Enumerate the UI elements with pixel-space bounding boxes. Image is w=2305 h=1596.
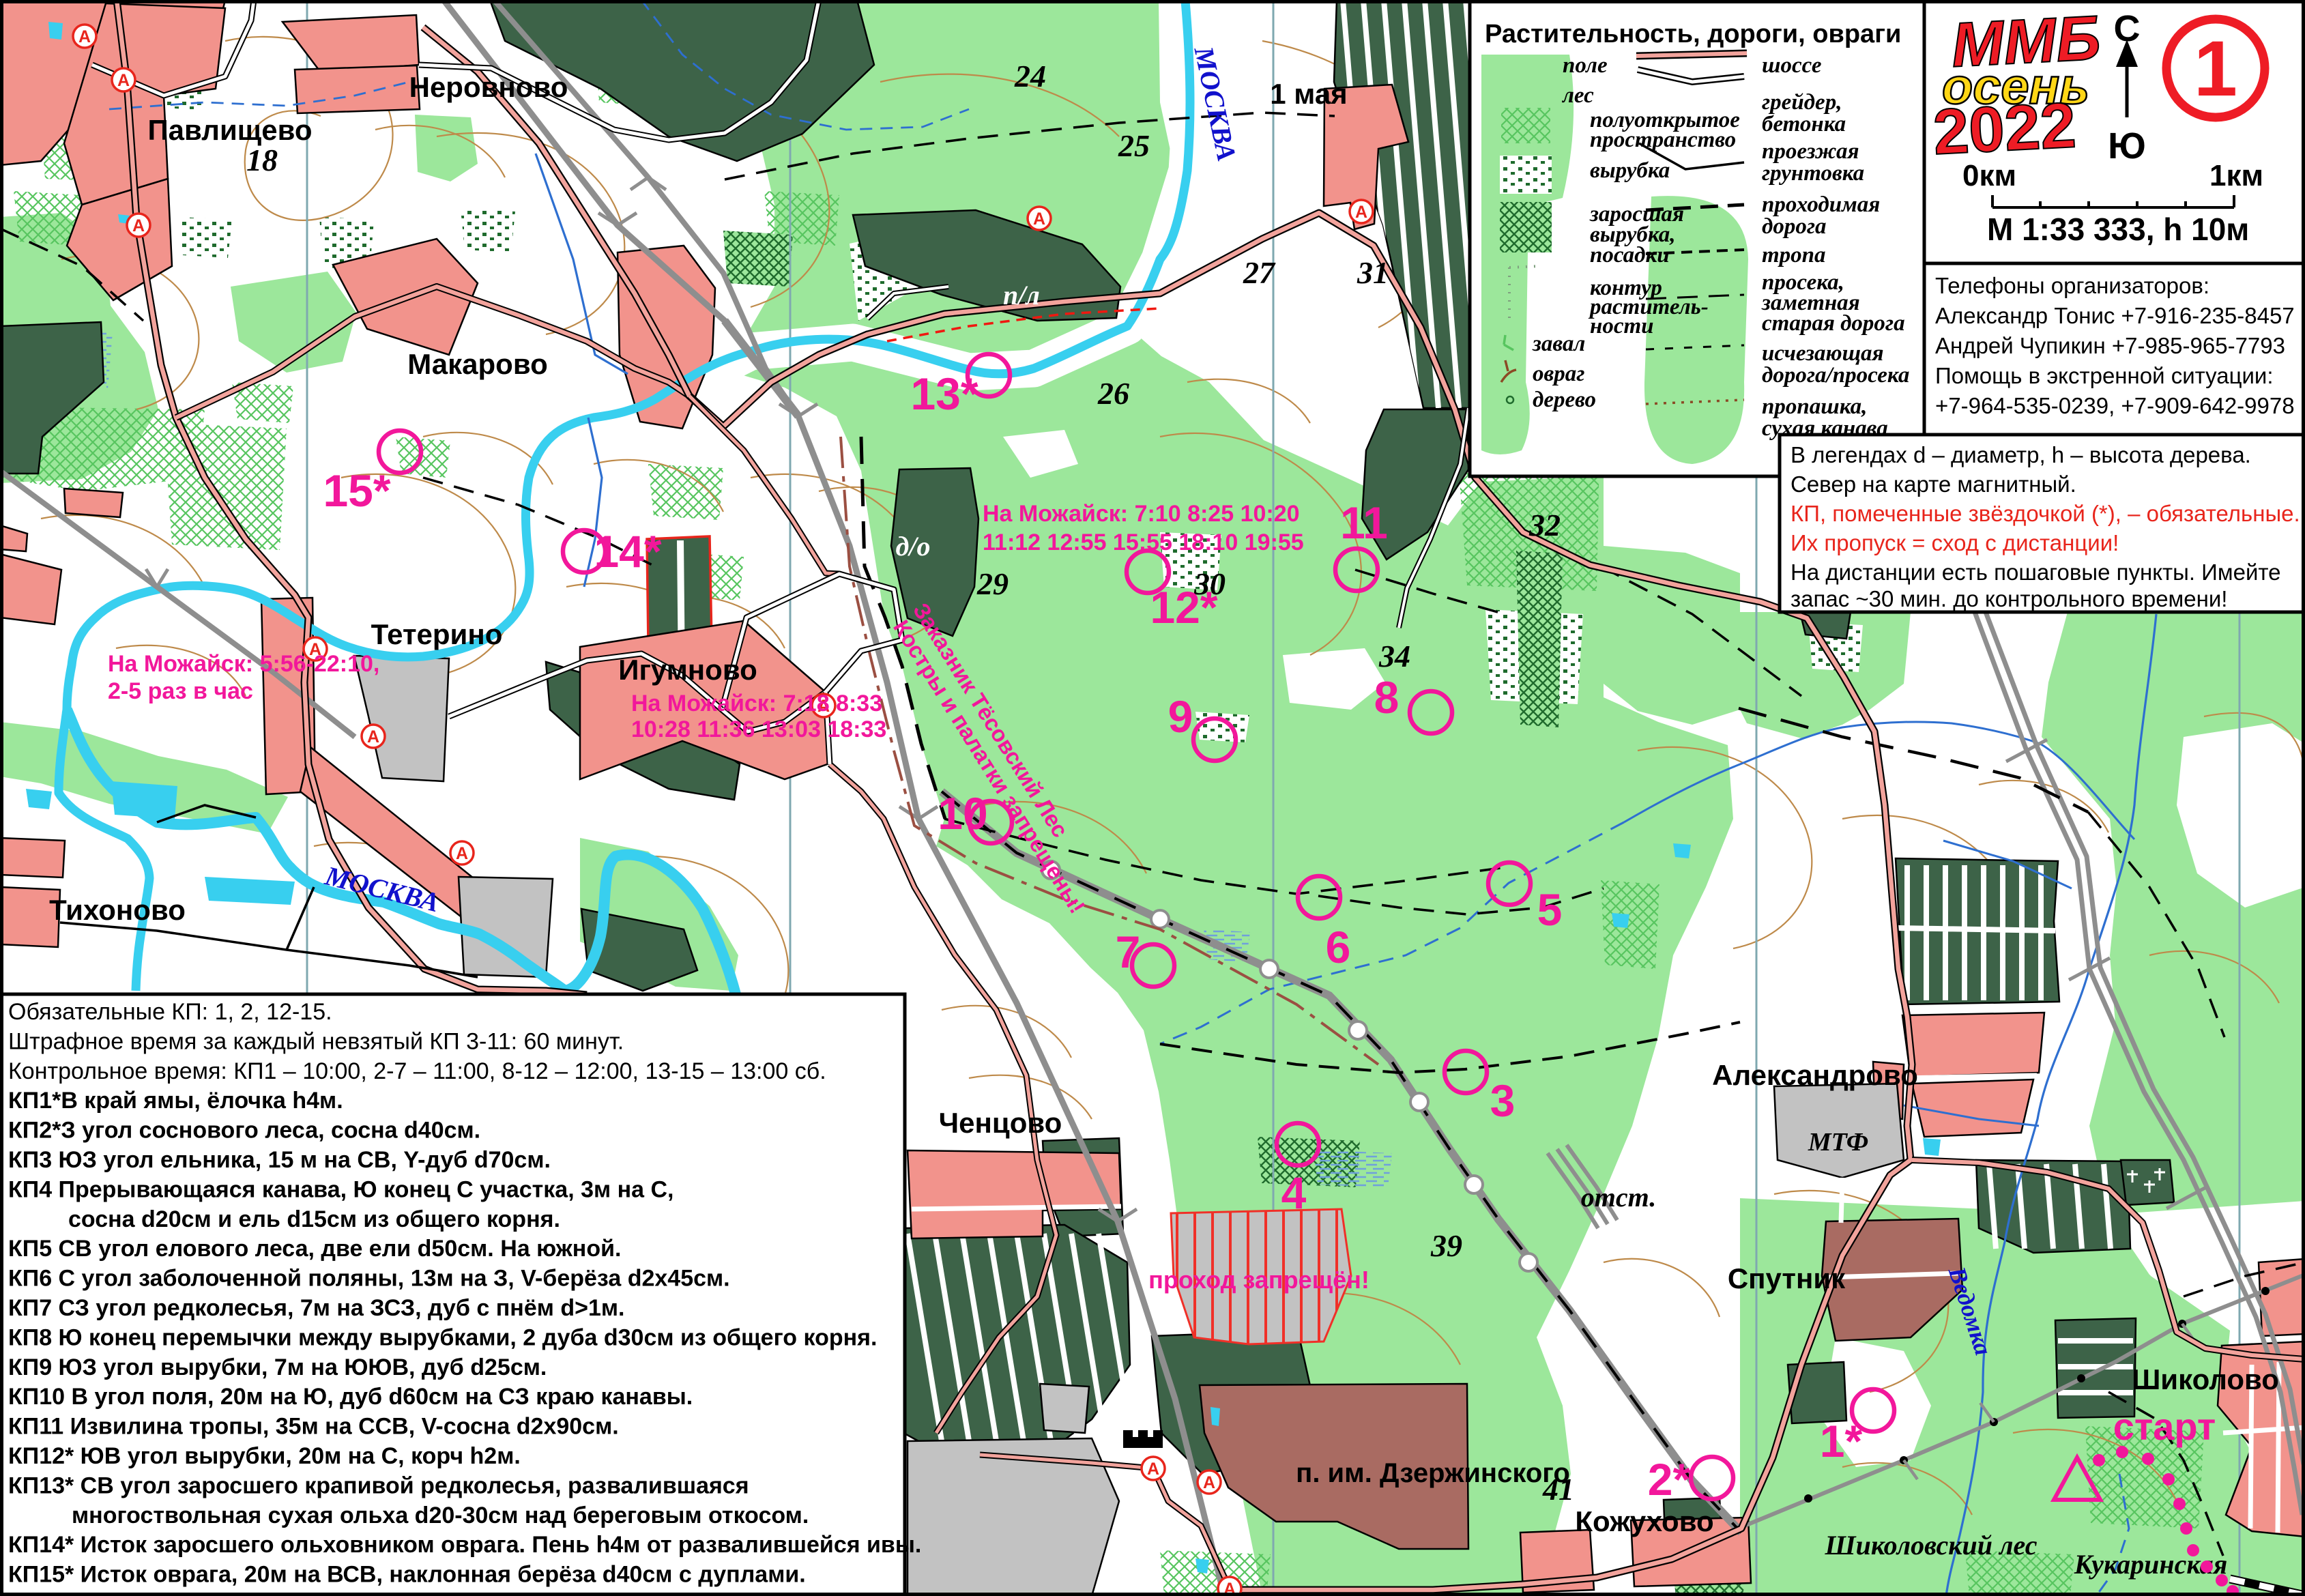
svg-text:26: 26 — [1097, 376, 1129, 411]
svg-text:проходимая: проходимая — [1762, 192, 1880, 217]
svg-text:поле: поле — [1563, 53, 1608, 78]
svg-text:посадки: посадки — [1590, 243, 1670, 267]
svg-text:2-5 раз в час: 2-5 раз в час — [108, 678, 253, 704]
svg-text:32: 32 — [1528, 508, 1561, 542]
svg-text:КП11 Извилина тропы, 35м на С: КП11 Извилина тропы, 35м на ССВ, V-сосна… — [8, 1414, 619, 1440]
svg-text:7: 7 — [1116, 927, 1141, 977]
svg-text:Ю: Ю — [2108, 126, 2146, 166]
svg-text:КП5 СВ угол елового леса, две: КП5 СВ угол елового леса, две ели d50см.… — [8, 1236, 621, 1262]
svg-text:34: 34 — [1378, 639, 1410, 673]
svg-text:39: 39 — [1430, 1228, 1462, 1263]
svg-text:п/л: п/л — [1003, 280, 1040, 310]
svg-text:грейдер,: грейдер, — [1762, 90, 1842, 115]
svg-text:9: 9 — [1168, 691, 1193, 742]
svg-text:КП, помеченные звёздочкой (*),: КП, помеченные звёздочкой (*), – обязате… — [1791, 501, 2300, 526]
svg-text:пропашка,: пропашка, — [1762, 394, 1867, 419]
svg-text:А: А — [78, 27, 91, 46]
svg-text:вырубка: вырубка — [1590, 158, 1670, 183]
svg-text:Штрафное время за каждый невзя: Штрафное время за каждый невзятый КП 3-1… — [8, 1028, 624, 1054]
svg-text:На Можайск: 7:18 8:33: На Можайск: 7:18 8:33 — [631, 691, 882, 716]
svg-text:д/о: д/о — [896, 531, 931, 562]
svg-text:Телефоны организаторов:: Телефоны организаторов: — [1935, 273, 2209, 298]
svg-text:12*: 12* — [1150, 582, 1217, 633]
svg-text:ности: ности — [1590, 314, 1654, 338]
svg-text:24: 24 — [1014, 59, 1046, 93]
svg-text:А: А — [367, 727, 379, 746]
svg-text:КП13* СВ угол заросшего крапив: КП13* СВ угол заросшего крапивой редколе… — [8, 1472, 749, 1498]
svg-text:старая дорога: старая дорога — [1762, 311, 1905, 336]
svg-text:М 1:33 333, h 10м: М 1:33 333, h 10м — [1987, 212, 2249, 247]
svg-text:МТФ: МТФ — [1808, 1128, 1868, 1157]
svg-text:запас ~30 мин. до контрольного: запас ~30 мин. до контрольного времени! — [1791, 586, 2227, 611]
svg-text:КП8 Ю конец перемычки между в: КП8 Ю конец перемычки между вырубками, 2… — [8, 1324, 877, 1350]
svg-text:А: А — [1033, 209, 1045, 229]
svg-text:А: А — [456, 844, 468, 863]
svg-text:8: 8 — [1374, 672, 1400, 723]
svg-text:11: 11 — [1340, 497, 1388, 548]
svg-text:многоствольная сухая ольха d20: многоствольная сухая ольха d20-30см над … — [72, 1503, 809, 1528]
svg-text:В легендах d – диаметр, h – вы: В легендах d – диаметр, h – высота дерев… — [1791, 442, 2251, 467]
svg-text:овраг: овраг — [1533, 362, 1584, 386]
svg-text:шоссе: шоссе — [1762, 53, 1822, 78]
svg-text:КП1*В край ямы, ёлочка h4м.: КП1*В край ямы, ёлочка h4м. — [8, 1088, 343, 1114]
svg-text:10: 10 — [938, 788, 987, 839]
svg-text:Александр Тонис +7-916-235-845: Александр Тонис +7-916-235-8457 — [1935, 303, 2295, 328]
svg-text:лес: лес — [1561, 83, 1594, 108]
svg-text:проезжая: проезжая — [1762, 139, 1859, 164]
svg-text:27: 27 — [1243, 255, 1276, 290]
svg-text:КП7 СЗ угол редколесья, 7м на: КП7 СЗ угол редколесья, 7м на ЗСЗ, дуб с… — [8, 1295, 624, 1321]
svg-text:бетонка: бетонка — [1762, 112, 1846, 136]
svg-text:На Можайск: 7:10 8:25 10:20: На Можайск: 7:10 8:25 10:20 — [983, 501, 1300, 527]
svg-text:0км: 0км — [1962, 159, 2016, 192]
svg-text:Тихоново: Тихоново — [49, 894, 186, 926]
svg-text:КП3 ЮЗ угол ельника, 15 м на: КП3 ЮЗ угол ельника, 15 м на СВ, Y-дуб d… — [8, 1147, 551, 1173]
svg-text:Контрольное время: КП1 – 10:00: Контрольное время: КП1 – 10:00, 2-7 – 11… — [8, 1058, 826, 1084]
svg-text:А: А — [1147, 1460, 1159, 1479]
svg-text:Шиколовский лес: Шиколовский лес — [1825, 1530, 2038, 1561]
svg-text:Андрей Чупикин +7-985-965-7793: Андрей Чупикин +7-985-965-7793 — [1935, 333, 2285, 358]
svg-text:КП10 В угол поля, 20м на Ю, д: КП10 В угол поля, 20м на Ю, дуб d60см на… — [8, 1384, 693, 1410]
svg-text:Александрово: Александрово — [1712, 1059, 1918, 1091]
svg-text:1км: 1км — [2209, 159, 2263, 192]
svg-text:На Можайск: 5:56-22:10,: На Можайск: 5:56-22:10, — [108, 651, 379, 677]
svg-text:дорога/просека: дорога/просека — [1762, 363, 1909, 388]
svg-text:2022: 2022 — [1931, 89, 2077, 168]
svg-text:15*: 15* — [323, 465, 390, 516]
svg-text:13*: 13* — [910, 368, 978, 419]
svg-text:Макарово: Макарово — [407, 348, 547, 380]
svg-text:п. им. Дзержинского: п. им. Дзержинского — [1296, 1458, 1570, 1488]
svg-text:Тетерино: Тетерино — [371, 618, 503, 650]
svg-text:А: А — [132, 216, 145, 235]
svg-text:+7-964-535-0239, +7-909-642-99: +7-964-535-0239, +7-909-642-9978 — [1935, 393, 2295, 418]
svg-text:КП14* Исток заросшего ольховни: КП14* Исток заросшего ольховником оврага… — [8, 1532, 921, 1558]
svg-text:Кожухово: Кожухово — [1575, 1505, 1713, 1537]
svg-text:1*: 1* — [1820, 1416, 1863, 1466]
svg-text:1: 1 — [2194, 25, 2237, 113]
svg-text:Спутник: Спутник — [1728, 1262, 1846, 1294]
svg-text:КП4 Прерывающаяся канава, Ю к: КП4 Прерывающаяся канава, Ю конец С учас… — [8, 1176, 674, 1202]
svg-text:29: 29 — [976, 566, 1009, 601]
svg-text:КП9 ЮЗ угол вырубки, 7м на ЮЮ: КП9 ЮЗ угол вырубки, 7м на ЮЮВ, дуб d25с… — [8, 1354, 547, 1380]
svg-text:Растительность, дороги, овраги: Растительность, дороги, овраги — [1485, 20, 1901, 48]
svg-text:2*: 2* — [1648, 1454, 1691, 1505]
svg-text:31: 31 — [1357, 255, 1389, 290]
svg-text:4: 4 — [1281, 1167, 1307, 1218]
svg-text:отст.: отст. — [1581, 1182, 1656, 1213]
svg-text:КП2*З угол соснового леса, сос: КП2*З угол соснового леса, сосна d40см. — [8, 1118, 480, 1144]
svg-text:Неровново: Неровново — [409, 71, 568, 103]
svg-text:А: А — [1355, 203, 1367, 222]
svg-text:КП15* Исток оврага, 20м на ВСВ: КП15* Исток оврага, 20м на ВСВ, наклонна… — [8, 1562, 806, 1588]
svg-text:КП6 С угол заболоченной полян: КП6 С угол заболоченной поляны, 13м на З… — [8, 1266, 730, 1292]
svg-text:грунтовка: грунтовка — [1762, 161, 1864, 186]
svg-text:41: 41 — [1542, 1472, 1574, 1507]
svg-text:Павлищево: Павлищево — [147, 114, 312, 146]
svg-text:10:28 11:36 13:03 18:33: 10:28 11:36 13:03 18:33 — [631, 716, 886, 742]
svg-text:КП12* ЮВ угол вырубки, 20м на: КП12* ЮВ угол вырубки, 20м на С, корч h2… — [8, 1443, 521, 1469]
svg-text:Ченцово: Ченцово — [939, 1107, 1062, 1139]
svg-text:старт: старт — [2113, 1405, 2216, 1448]
svg-text:А: А — [1203, 1473, 1215, 1492]
svg-text:дорога: дорога — [1762, 214, 1827, 239]
svg-text:А: А — [117, 71, 130, 90]
svg-text:3: 3 — [1490, 1075, 1516, 1126]
svg-text:тропа: тропа — [1762, 243, 1826, 267]
svg-text:завал: завал — [1532, 332, 1585, 356]
svg-text:Их пропуск = сход с дистанции!: Их пропуск = сход с дистанции! — [1791, 530, 2119, 555]
svg-text:Север на карте магнитный.: Север на карте магнитный. — [1791, 471, 2076, 497]
svg-text:14*: 14* — [594, 526, 661, 577]
svg-text:проход запрещён!: проход запрещён! — [1148, 1266, 1369, 1294]
svg-text:На дистанции есть пошаговые пу: На дистанции есть пошаговые пункты. Имей… — [1791, 560, 2280, 585]
svg-text:Шиколово: Шиколово — [2132, 1363, 2279, 1395]
svg-text:6: 6 — [1326, 922, 1351, 972]
svg-text:пространство: пространство — [1590, 128, 1736, 152]
svg-text:сосна d20см и ель d15см из общ: сосна d20см и ель d15см из общего корня. — [68, 1206, 560, 1232]
svg-text:1 мая: 1 мая — [1270, 78, 1347, 110]
svg-text:5: 5 — [1537, 884, 1563, 935]
svg-text:Игумново: Игумново — [618, 654, 757, 686]
svg-text:исчезающая: исчезающая — [1762, 341, 1884, 366]
svg-text:18: 18 — [246, 143, 278, 177]
svg-text:Обязательные КП: 1, 2, 12-15.: Обязательные КП: 1, 2, 12-15. — [8, 999, 332, 1025]
svg-text:25: 25 — [1118, 128, 1150, 163]
svg-text:Помощь в экстренной ситуации:: Помощь в экстренной ситуации: — [1935, 363, 2274, 388]
svg-text:дерево: дерево — [1533, 388, 1596, 412]
